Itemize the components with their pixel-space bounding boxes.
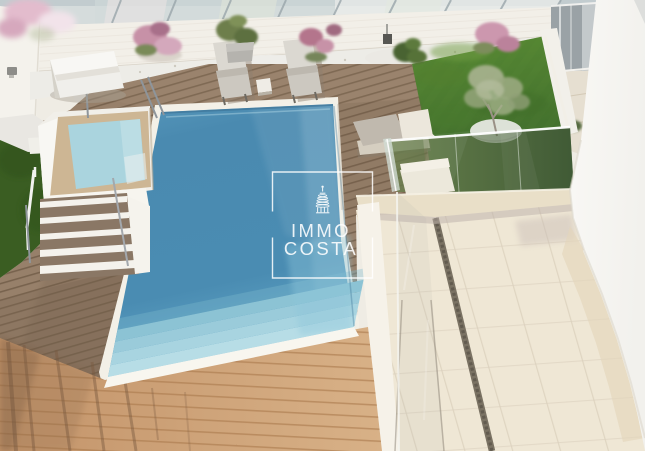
- svg-text:COSTA: COSTA: [284, 238, 358, 259]
